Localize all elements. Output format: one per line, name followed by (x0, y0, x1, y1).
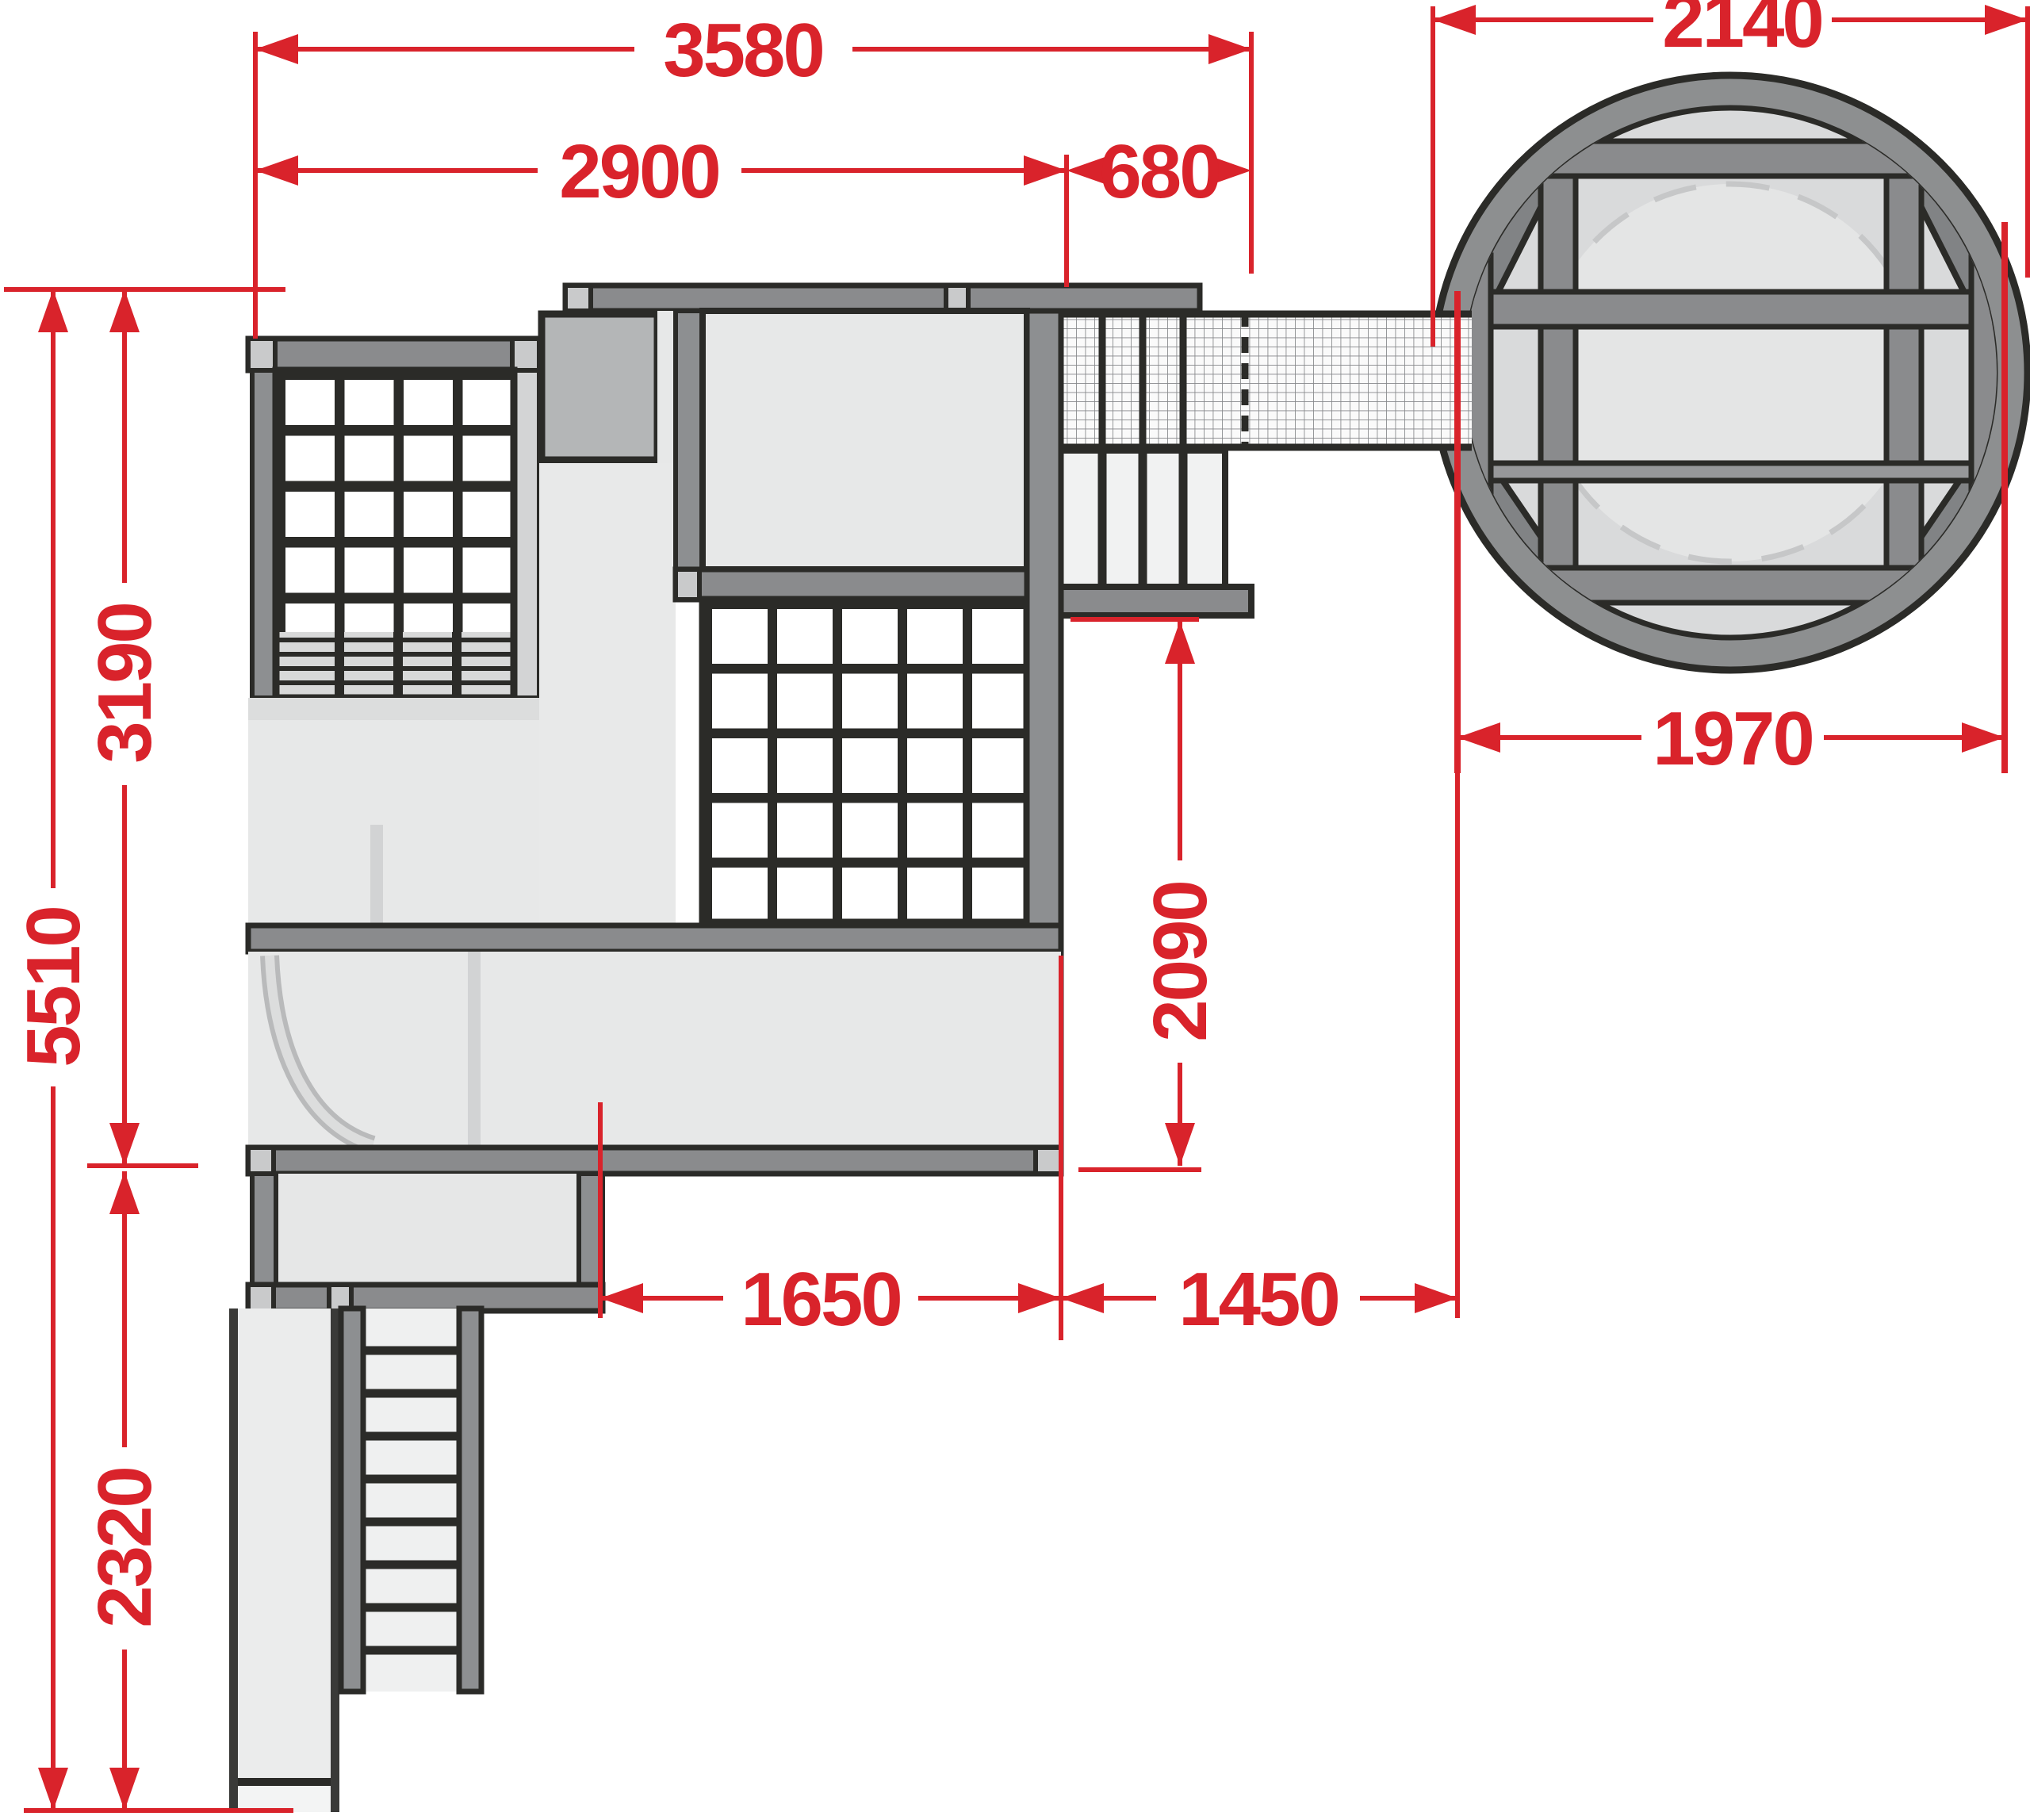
bottom-bar-corner-left (248, 1148, 274, 1174)
main-tower (229, 285, 1200, 1812)
dim-label-1650: 1650 (741, 1257, 901, 1342)
slide-rail-right (331, 1308, 339, 1812)
top-rail-corner-left (565, 285, 591, 311)
dim-label-2140: 2140 (1662, 0, 1822, 63)
dim-label-3190: 3190 (82, 603, 167, 764)
left-grid-corner-tl (248, 339, 275, 370)
frame-rail-main (1432, 292, 2028, 327)
bay-platform-bar (1056, 587, 1251, 615)
net-bridge (1056, 311, 1472, 615)
annex-corner-left (248, 1285, 274, 1311)
ladder-rail-left (341, 1308, 363, 1692)
top-rail (565, 285, 1200, 311)
frame-top-bar (1541, 141, 1921, 176)
plan-drawing: 3580 2900 680 2140 1970 5510 3190 2320 1… (0, 0, 2030, 1820)
slide-interior (238, 1308, 331, 1782)
dim-1450 (1061, 773, 1457, 1318)
dim-label-3580: 3580 (663, 8, 823, 93)
left-grid-corner-tr (512, 339, 539, 370)
ladder (341, 1308, 481, 1692)
left-grid-top-rail (248, 339, 539, 370)
frame-bottom-bar (1541, 568, 1921, 603)
dim-label-2090: 2090 (1138, 882, 1223, 1042)
circular-tower (1432, 75, 2028, 670)
central-bar (676, 569, 1061, 600)
dim-label-2900: 2900 (559, 129, 719, 214)
dim-label-1450: 1450 (1178, 1257, 1339, 1342)
left-grid-side-strip (514, 370, 539, 698)
central-post-left (676, 311, 703, 600)
central-grid-cells (703, 600, 1027, 922)
left-grid-cells (276, 370, 514, 632)
slide-rail-left (229, 1308, 238, 1812)
annex-interior (274, 1174, 580, 1285)
bridge-mesh (1061, 311, 1472, 450)
mid-square-platform (542, 314, 657, 460)
central-platform (703, 311, 1027, 569)
mid-column-pale (539, 463, 676, 925)
pale-strip-lower (468, 952, 481, 1148)
dim-label-680: 680 (1099, 129, 1219, 214)
top-rail-joint (946, 285, 968, 311)
lower-platform (248, 952, 1061, 1148)
ladder-bed (363, 1308, 459, 1692)
slide-foot (238, 1782, 331, 1812)
bottom-bar-corner-right (1036, 1148, 1061, 1174)
frame-rail-lower (1459, 463, 2001, 481)
circle-dashed-guide (1542, 184, 1919, 561)
dim-label-1970: 1970 (1653, 696, 1813, 781)
annex-bottom-bar (248, 1285, 603, 1311)
annex-platform (248, 1174, 603, 1311)
dim-label-5510: 5510 (11, 907, 96, 1067)
central-bar-corner (676, 569, 699, 600)
slide-chute (229, 1308, 339, 1812)
left-grid-panel (248, 339, 539, 698)
bottom-bar (248, 1148, 1061, 1174)
left-column-band (248, 698, 539, 720)
ladder-rail-right (459, 1308, 481, 1692)
drawing-canvas: 3580 2900 680 2140 1970 5510 3190 2320 1… (0, 0, 2030, 1820)
dim-label-2320: 2320 (82, 1468, 167, 1628)
mid-bar (248, 925, 1061, 952)
pale-strip-upper (370, 825, 383, 925)
left-column-pale (248, 698, 539, 925)
